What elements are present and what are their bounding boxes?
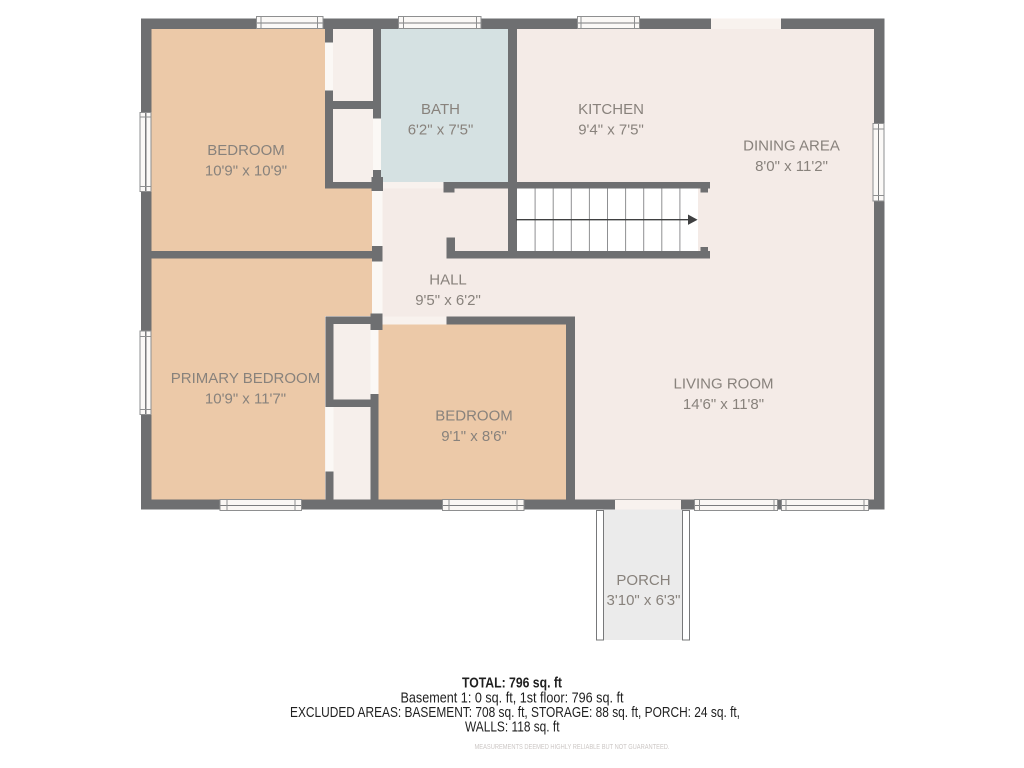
svg-text:14'6" x 11'8": 14'6" x 11'8" xyxy=(683,396,764,413)
svg-text:HALL: HALL xyxy=(429,272,467,289)
svg-text:10'9" x 10'9": 10'9" x 10'9" xyxy=(205,162,287,179)
svg-text:BEDROOM: BEDROOM xyxy=(435,408,513,425)
svg-text:6'2" x 7'5": 6'2" x 7'5" xyxy=(408,121,474,138)
svg-text:PORCH: PORCH xyxy=(616,572,670,589)
svg-text:WALLS: 118 sq. ft: WALLS: 118 sq. ft xyxy=(465,720,560,736)
svg-text:MEASUREMENTS DEEMED HIGHLY REL: MEASUREMENTS DEEMED HIGHLY RELIABLE BUT … xyxy=(475,742,670,751)
svg-text:BEDROOM: BEDROOM xyxy=(207,142,285,159)
svg-text:9'1" x 8'6": 9'1" x 8'6" xyxy=(441,428,507,445)
svg-text:8'0" x 11'2": 8'0" x 11'2" xyxy=(755,158,828,175)
svg-text:DINING AREA: DINING AREA xyxy=(743,138,840,155)
svg-text:9'4" x 7'5": 9'4" x 7'5" xyxy=(578,121,644,138)
svg-text:LIVING ROOM: LIVING ROOM xyxy=(673,376,773,393)
svg-text:3'10" x 6'3": 3'10" x 6'3" xyxy=(607,592,681,609)
svg-text:KITCHEN: KITCHEN xyxy=(578,101,644,118)
svg-text:10'9" x 11'7": 10'9" x 11'7" xyxy=(205,390,286,407)
svg-text:PRIMARY BEDROOM: PRIMARY BEDROOM xyxy=(171,370,320,387)
svg-text:9'5" x 6'2": 9'5" x 6'2" xyxy=(415,292,481,309)
svg-text:BATH: BATH xyxy=(421,101,460,118)
svg-text:TOTAL: 796 sq. ft: TOTAL: 796 sq. ft xyxy=(462,676,562,692)
